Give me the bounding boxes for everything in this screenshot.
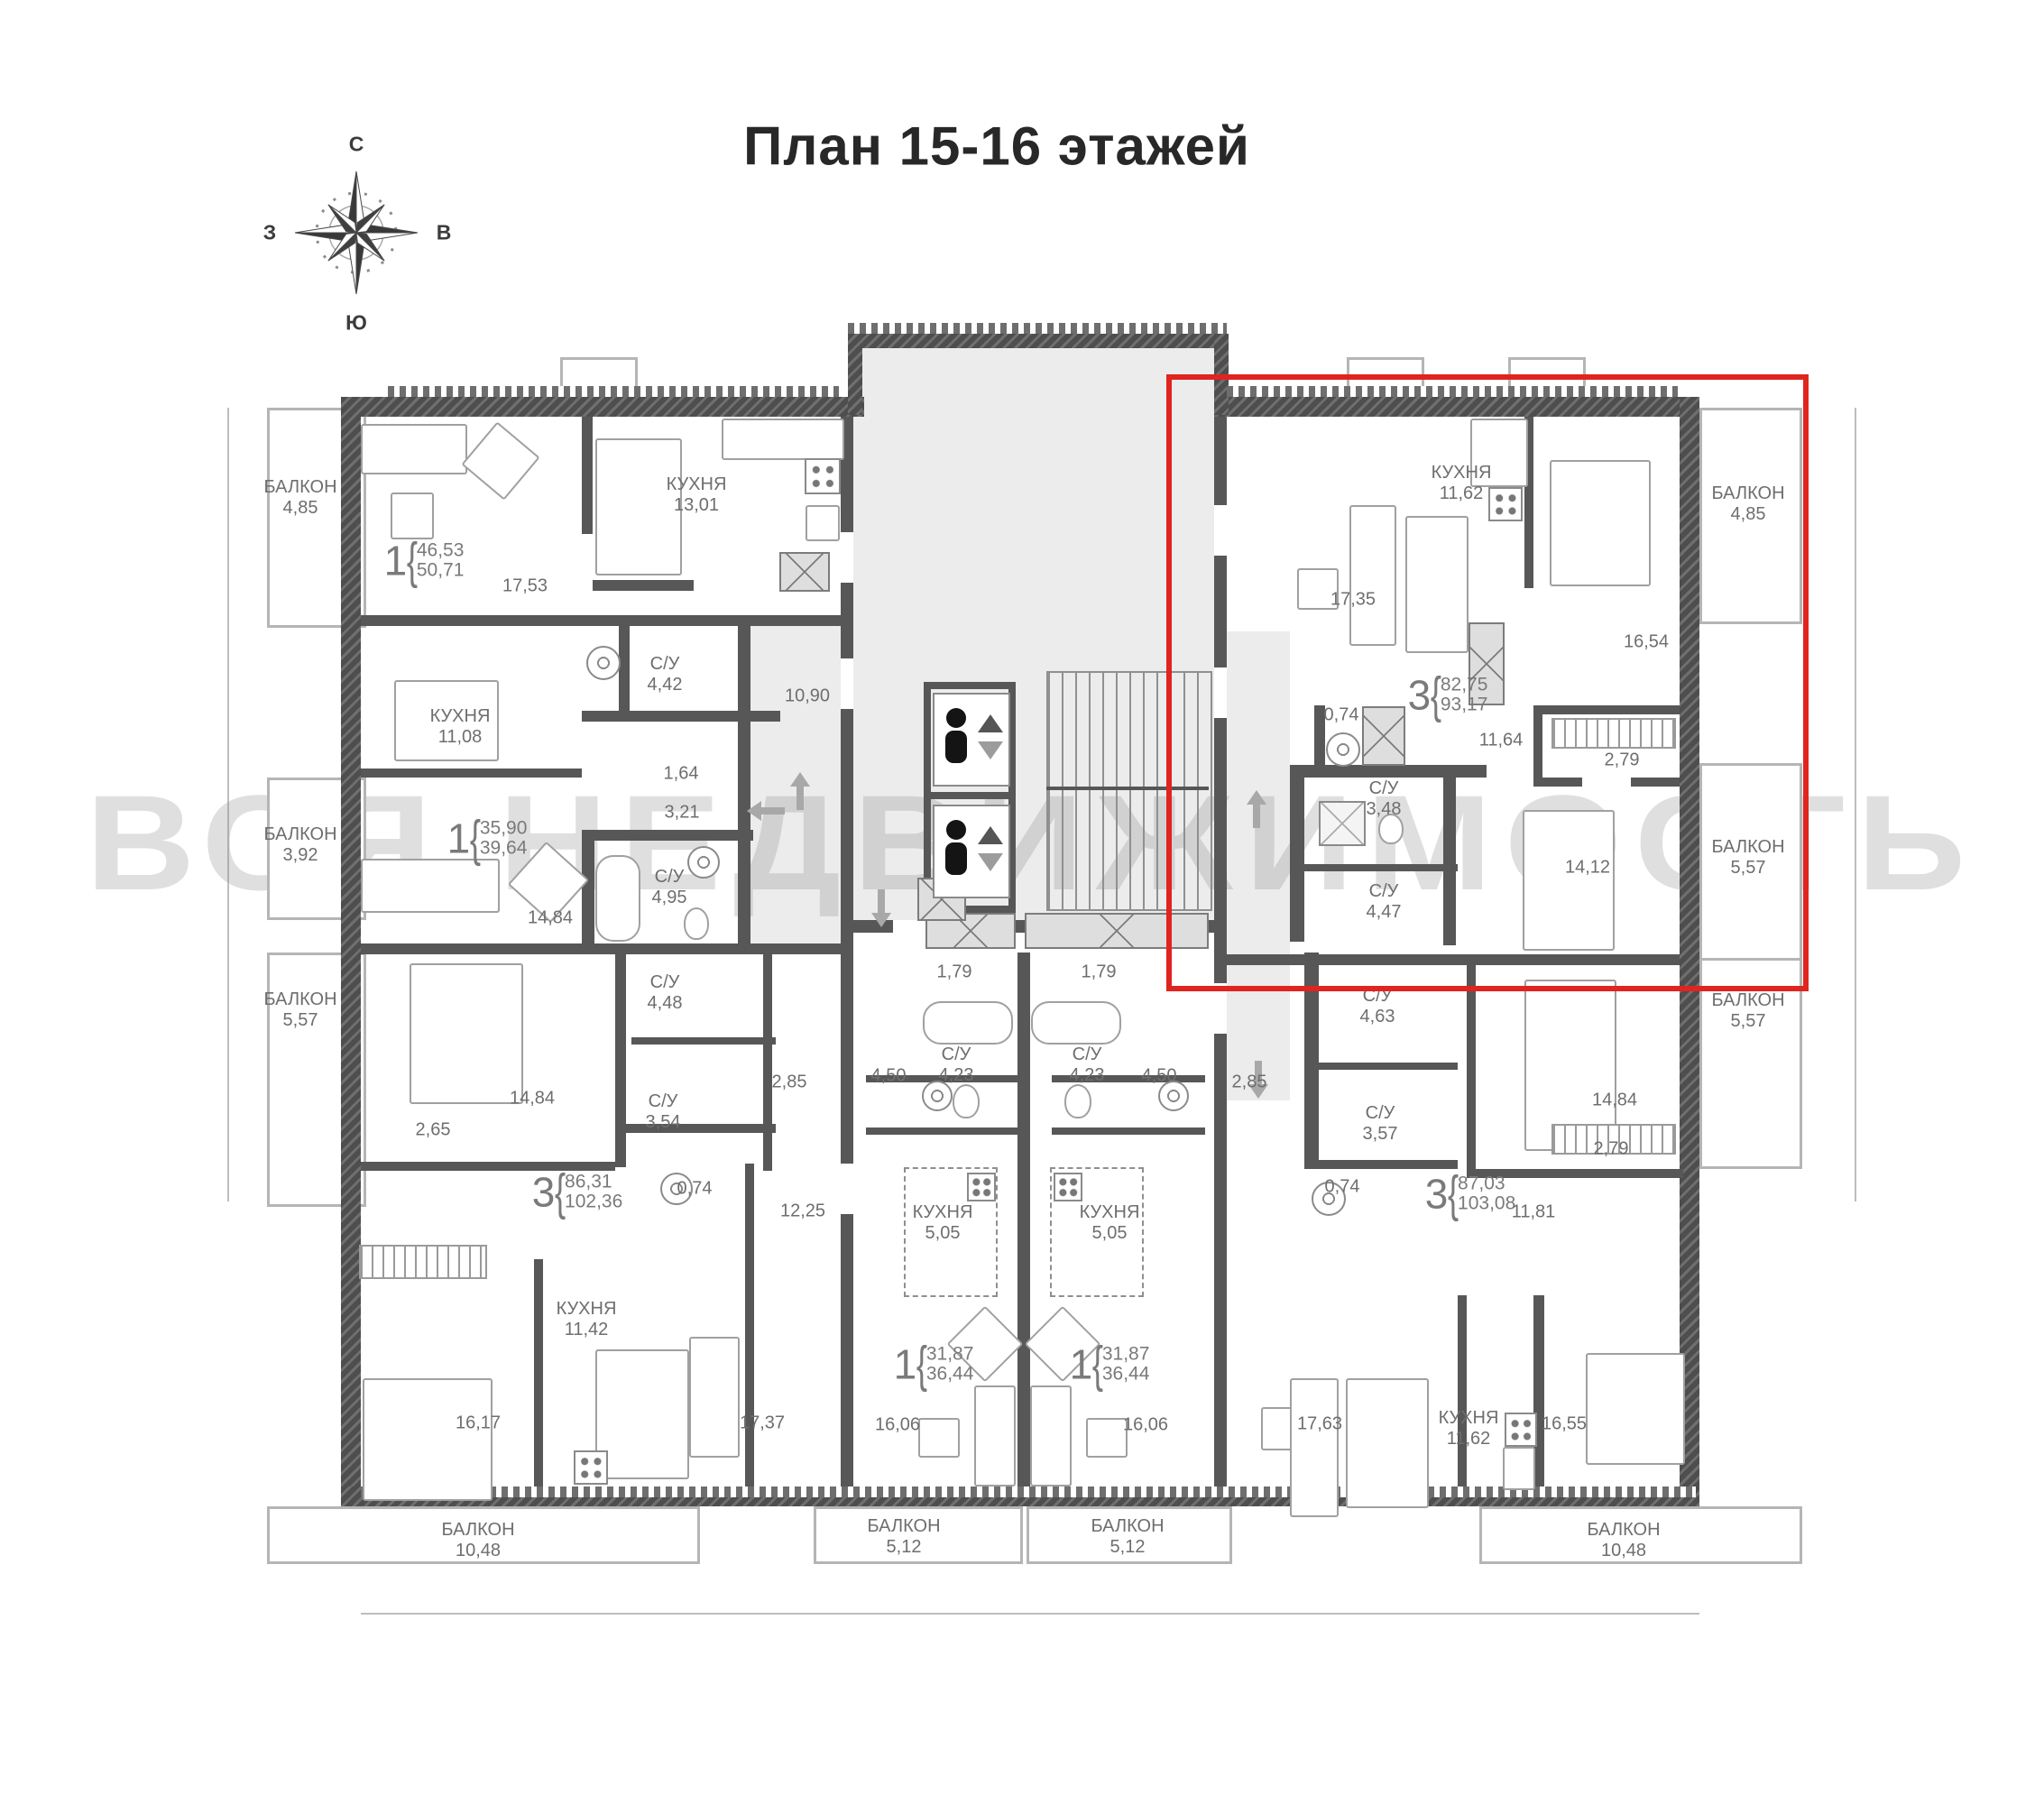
page-title: План 15-16 этажей [743, 115, 1250, 178]
washing-machine-icon [687, 846, 720, 879]
wardrobe-2-79-rb: 2,79 [1594, 1138, 1629, 1159]
bathtub-icon [923, 1001, 1013, 1045]
hall-4-50-l: 4,50 [871, 1065, 907, 1086]
apt-3room-86-spec: 3{86,31102,36 [532, 1164, 623, 1222]
balcony-10-48-right: БАЛКОН10,48 [1587, 1520, 1660, 1561]
sofa-icon [1030, 1385, 1072, 1486]
living-16-06-l: 16,06 [875, 1414, 920, 1435]
hall-1-79-r: 1,79 [1082, 962, 1117, 982]
hall-2-85-left: 2,85 [772, 1072, 807, 1092]
coffee-table-icon [918, 1418, 960, 1458]
kitchen-11-62-rb: КУХНЯ11,62 [1439, 1408, 1499, 1450]
hall-11-81: 11,81 [1512, 1201, 1556, 1222]
stove-icon [574, 1450, 608, 1485]
bedroom-16-17: 16,17 [456, 1413, 501, 1433]
apt-1room-35-spec: 1{35,9039,64 [447, 810, 528, 869]
balcony-5-57-r2: БАЛКОН5,57 [1711, 990, 1784, 1032]
balcony-top-left: БАЛКОН4,85 [263, 477, 336, 519]
sink-icon [806, 505, 840, 541]
hall-2-65: 2,65 [416, 1119, 451, 1140]
closet-0-74-rb: 0,74 [1325, 1176, 1360, 1197]
compass-east-label: В [437, 221, 452, 245]
dining-table-icon [1346, 1378, 1429, 1508]
sofa-icon [1290, 1378, 1339, 1517]
living-14-84-ml: 14,84 [528, 907, 573, 928]
balcony-5-57-left: БАЛКОН5,57 [263, 989, 336, 1031]
living-17-37: 17,37 [740, 1413, 785, 1433]
kitchen-5-05-r: КУХНЯ5,05 [1080, 1202, 1140, 1244]
bathtub-icon [1031, 1001, 1121, 1045]
hall-4-50-r: 4,50 [1142, 1065, 1177, 1086]
hall-1-79-l: 1,79 [937, 962, 972, 982]
apt-1room-31-spec-r: 1{31,8736,44 [1070, 1336, 1150, 1394]
elevator-icon [933, 693, 1010, 787]
kitchen-11-08: КУХНЯ11,08 [430, 706, 491, 748]
coffee-table-icon [1086, 1418, 1128, 1458]
sofa-icon [689, 1337, 740, 1458]
wc-4-63: С/У4,63 [1360, 986, 1395, 1027]
wc-4-48: С/У4,48 [648, 972, 683, 1014]
sofa-icon [974, 1385, 1016, 1486]
closet-0-74-left: 0,74 [677, 1178, 713, 1199]
kitchen-11-42: КУХНЯ11,42 [557, 1299, 617, 1340]
compass-south-label: Ю [345, 311, 367, 336]
apt-1room-46-spec: 1{46,5350,71 [384, 532, 465, 591]
balcony-10-48-left: БАЛКОН10,48 [441, 1520, 514, 1561]
balcony-5-12-r: БАЛКОН5,12 [1091, 1516, 1164, 1558]
hall-1-64: 1,64 [664, 763, 699, 784]
balcony-3-92: БАЛКОН3,92 [263, 824, 336, 866]
toilet-icon [1064, 1084, 1091, 1118]
hall-10-90: 10,90 [785, 686, 830, 706]
elevator-icon [933, 805, 1010, 898]
wc-3-57: С/У3,57 [1363, 1103, 1398, 1145]
entry-arrow-down-icon [871, 889, 891, 927]
stove-icon [967, 1173, 996, 1201]
apt-1room-31-spec-l: 1{31,8736,44 [894, 1336, 974, 1394]
dining-table-icon [595, 1349, 689, 1479]
sofa-icon [361, 424, 467, 474]
wc-4-42: С/У4,42 [648, 654, 683, 695]
bedroom-14-84-rb: 14,84 [1592, 1090, 1637, 1110]
bedroom-14-84-bl: 14,84 [510, 1088, 555, 1109]
stove-icon [1505, 1413, 1537, 1447]
bed-icon [410, 963, 523, 1104]
fridge-icon [779, 552, 830, 592]
wc-4-23-r: С/У4,23 [1070, 1045, 1105, 1086]
hall-3-21: 3,21 [665, 802, 700, 823]
bedroom-16-55: 16,55 [1542, 1413, 1587, 1434]
wc-4-23-l: С/У4,23 [939, 1045, 974, 1086]
floor-plan-canvas: План 15-16 этажей ВСЯ НЕДВИЖИМОСТЬ [0, 0, 2044, 1804]
bathtub-icon [595, 855, 640, 942]
living-16-06-r: 16,06 [1123, 1414, 1168, 1435]
living-17-53: 17,53 [502, 575, 548, 596]
wc-4-95: С/У4,95 [652, 867, 687, 908]
bed-icon [363, 1378, 493, 1501]
kitchen-13-01: КУХНЯ13,01 [667, 474, 727, 516]
kitchen-counter-icon [1503, 1447, 1535, 1490]
toilet-icon [953, 1084, 980, 1118]
armchair-icon [461, 421, 539, 500]
hall-2-85-right: 2,85 [1232, 1072, 1267, 1092]
washing-machine-icon [586, 646, 621, 680]
stove-icon [805, 458, 841, 494]
kitchen-counter-icon [722, 419, 844, 460]
wardrobe-icon [359, 1245, 487, 1279]
stove-icon [1054, 1173, 1082, 1201]
bed-icon [1586, 1353, 1685, 1465]
wc-3-54: С/У3,54 [646, 1091, 681, 1133]
compass-north-label: С [349, 133, 364, 157]
entry-arrow-up-icon [790, 772, 810, 810]
hall-12-25: 12,25 [780, 1201, 825, 1221]
kitchen-5-05-l: КУХНЯ5,05 [913, 1202, 973, 1244]
compass-star-icon [289, 165, 424, 300]
apt-3room-87-spec: 3{87,03103,08 [1425, 1165, 1516, 1224]
compass-west-label: З [263, 221, 276, 245]
entry-arrow-left-icon [747, 801, 785, 821]
living-17-63: 17,63 [1297, 1413, 1342, 1434]
highlighted-apartment-outline [1166, 374, 1809, 991]
balcony-5-12-l: БАЛКОН5,12 [867, 1516, 940, 1558]
toilet-icon [684, 907, 709, 940]
